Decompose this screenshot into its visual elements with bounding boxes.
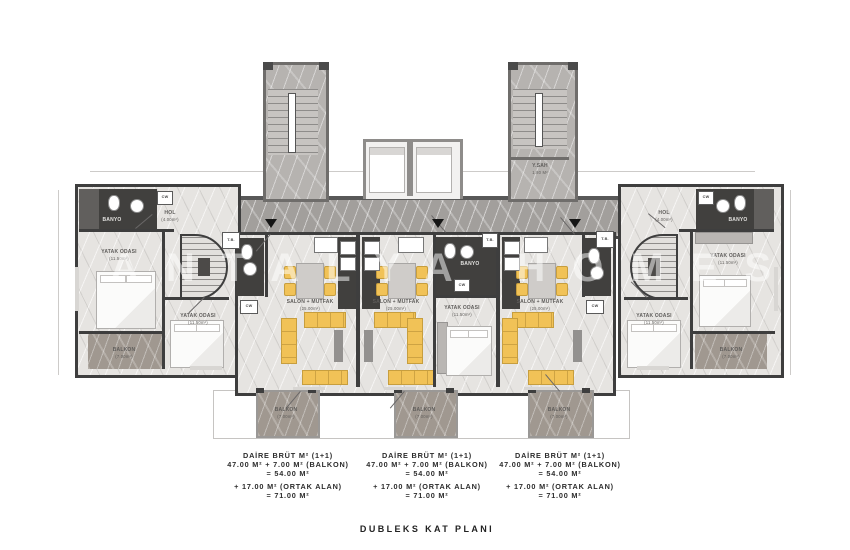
wall-stub xyxy=(446,388,454,393)
bedroom-label: YATAK ODASI(11.50m²) xyxy=(444,306,479,317)
salon-label: SALON + MUTFAK(25.00m²) xyxy=(287,300,334,311)
shower-area xyxy=(754,189,774,229)
floor-plan-canvas: Y.SAH1.80 M² CW BANYO HOL(4.00m²) YATAK … xyxy=(0,0,850,550)
sofa xyxy=(302,370,348,385)
sink xyxy=(243,262,257,276)
closet-box: CW xyxy=(586,300,604,314)
wall-stub xyxy=(256,388,264,393)
wall xyxy=(79,229,174,232)
window xyxy=(774,267,778,311)
stair-tower-left xyxy=(263,62,329,202)
stair-post xyxy=(198,258,210,276)
wall xyxy=(693,331,775,334)
stove xyxy=(504,241,520,255)
wall xyxy=(356,235,360,387)
bed xyxy=(96,271,156,329)
stove xyxy=(340,241,356,255)
fridge xyxy=(398,237,424,253)
sofa xyxy=(512,312,554,328)
tv-unit xyxy=(364,330,373,362)
center-units: CW xyxy=(235,232,616,396)
elevator-counterweight xyxy=(370,148,404,155)
plan-title: DUBLEKS KAT PLANI xyxy=(277,524,577,534)
bedroom-label: YATAK ODASI(11.50m²) xyxy=(636,314,671,325)
sofa xyxy=(502,318,518,364)
closet-box: CW xyxy=(240,300,258,314)
kitchen-sink xyxy=(364,257,380,271)
bedroom-label: YATAK ODASI(11.50m²) xyxy=(710,254,745,265)
balcony-label: BALKON(7.00m²) xyxy=(548,408,571,419)
wall xyxy=(496,235,500,387)
bedroom-label: YATAK ODASI(11.50m²) xyxy=(180,314,215,325)
elevator-counterweight xyxy=(417,148,451,155)
chair xyxy=(324,283,336,296)
stair-tower-right xyxy=(508,62,578,202)
bed xyxy=(446,326,492,376)
spiral-stair xyxy=(180,234,228,300)
shaft-divider-wall xyxy=(511,157,569,160)
stair-stringer xyxy=(535,93,543,147)
hall-label: HOL(4.00m²) xyxy=(161,211,178,222)
wall xyxy=(165,297,229,300)
balcony-label: BALKON(7.00m²) xyxy=(113,348,136,359)
column-cap xyxy=(568,62,578,70)
chair xyxy=(516,283,528,296)
entry-arrow xyxy=(569,219,581,228)
closet-box: CW xyxy=(157,191,173,205)
toilet xyxy=(444,243,456,259)
sink xyxy=(590,266,604,280)
kitchen-sink xyxy=(504,257,520,271)
sink xyxy=(130,199,144,213)
chair xyxy=(376,283,388,296)
fridge xyxy=(314,237,338,253)
wall xyxy=(265,235,268,297)
window xyxy=(637,366,669,370)
chair xyxy=(284,266,296,279)
hall-label: HOL(4.00m²) xyxy=(655,211,672,222)
wardrobe xyxy=(695,232,753,244)
toilet xyxy=(588,248,600,264)
dining-table xyxy=(388,263,416,299)
toilet xyxy=(108,195,120,211)
column-cap xyxy=(319,62,329,70)
salon-label: SALON + MUTFAK(25.00m²) xyxy=(373,300,420,311)
closet-box: CW xyxy=(698,191,714,205)
kitchen-sink xyxy=(340,257,356,271)
bath-label: BANYO xyxy=(460,262,479,268)
balcony-label: BALKON(7.00m²) xyxy=(275,408,298,419)
chair xyxy=(324,266,336,279)
chair xyxy=(556,266,568,279)
chair xyxy=(556,283,568,296)
tv-unit xyxy=(573,330,582,362)
bath-label: BANYO xyxy=(102,218,121,224)
right-wing: CW xyxy=(618,184,784,378)
left-wing: CW xyxy=(75,184,241,378)
stair-post xyxy=(648,258,660,276)
dining-table xyxy=(528,263,556,299)
balcony-door xyxy=(524,387,556,390)
bed xyxy=(627,320,681,368)
wall xyxy=(679,229,774,232)
sofa xyxy=(388,370,434,385)
shower-area xyxy=(79,189,99,229)
chair xyxy=(416,283,428,296)
wall xyxy=(624,297,688,300)
window xyxy=(190,366,222,370)
elevator-divider xyxy=(407,142,413,196)
elevator-car-left xyxy=(369,147,405,193)
unit-info-block-3: DAİRE BRÜT M² (1+1) 47.00 M² + 7.00 M² (… xyxy=(465,452,655,501)
wall xyxy=(436,295,496,298)
sofa xyxy=(304,312,346,328)
terrace-outline-left xyxy=(58,190,59,375)
column-cap xyxy=(263,62,273,70)
spiral-stair xyxy=(630,234,678,300)
tv-unit xyxy=(334,330,343,362)
stair-stringer xyxy=(288,93,296,153)
terrace-outline-right xyxy=(790,190,791,375)
entry-arrow xyxy=(432,219,444,228)
fridge xyxy=(524,237,548,253)
toilet xyxy=(241,244,253,260)
dining-table xyxy=(296,263,324,299)
unit-info-line: = 54.00 M² xyxy=(465,470,655,477)
chair xyxy=(284,283,296,296)
sink xyxy=(716,199,730,213)
column-cap xyxy=(508,62,518,70)
unit-info-line: = 71.00 M² xyxy=(465,492,655,499)
wc-box: T.B. xyxy=(482,233,498,248)
sink xyxy=(460,245,474,259)
salon-label: SALON + MUTFAK(25.00m²) xyxy=(517,300,564,311)
wc-box: T.B. xyxy=(596,231,614,248)
balcony-label: BALKON(7.00m²) xyxy=(413,408,436,419)
bed xyxy=(699,275,751,327)
wall-stub xyxy=(582,388,590,393)
sofa xyxy=(407,318,423,364)
wall xyxy=(690,229,693,369)
unit-info-line: DAİRE BRÜT M² (1+1) xyxy=(465,452,655,459)
bedroom-label: YATAK ODASI(11.50m²) xyxy=(101,250,136,261)
stove xyxy=(364,241,380,255)
balcony-label: BALKON(7.00m²) xyxy=(720,348,743,359)
sofa xyxy=(281,318,297,364)
entry-arrow xyxy=(265,219,277,228)
balcony-door xyxy=(293,387,325,390)
shaft-label: Y.SAH1.80 M² xyxy=(532,164,548,175)
window xyxy=(75,267,79,311)
wall xyxy=(79,331,165,334)
bath-label: BANYO xyxy=(728,218,747,224)
wall xyxy=(433,235,436,387)
closet-box: CW xyxy=(454,279,470,292)
chair xyxy=(416,266,428,279)
toilet xyxy=(734,195,746,211)
balcony-door xyxy=(384,387,416,390)
elevator-block xyxy=(363,139,463,199)
elevator-car-right xyxy=(416,147,452,193)
bed xyxy=(170,320,224,368)
wc-box: T.B. xyxy=(222,232,240,249)
unit-info-line: + 17.00 M² (ORTAK ALAN) xyxy=(465,483,655,490)
unit-info-line: 47.00 M² + 7.00 M² (BALKON) xyxy=(465,461,655,468)
